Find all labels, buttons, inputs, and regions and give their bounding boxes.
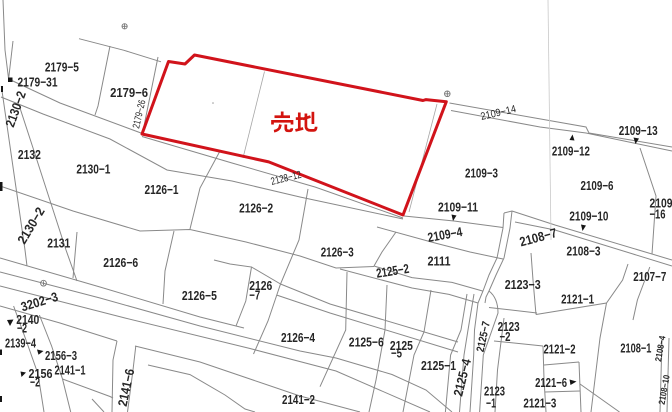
svg-text:2121−3: 2121−3 xyxy=(523,396,556,411)
svg-text:2121−2: 2121−2 xyxy=(544,342,576,357)
svg-text:2179−31: 2179−31 xyxy=(18,74,58,89)
svg-text:2109−6: 2109−6 xyxy=(581,178,614,193)
svg-text:2125−1: 2125−1 xyxy=(421,358,456,373)
svg-text:2126−6: 2126−6 xyxy=(103,255,138,270)
svg-text:2108−1: 2108−1 xyxy=(620,341,651,356)
svg-text:2125−6: 2125−6 xyxy=(349,334,384,349)
svg-text:2139−4: 2139−4 xyxy=(5,336,37,351)
svg-text:2130−1: 2130−1 xyxy=(76,162,110,177)
svg-text:−16: −16 xyxy=(650,207,666,222)
svg-text:2132: 2132 xyxy=(18,147,41,162)
svg-text:2179−5: 2179−5 xyxy=(45,59,79,74)
svg-text:2121−6: 2121−6 xyxy=(535,375,567,390)
svg-text:−2: −2 xyxy=(30,375,40,390)
svg-text:2126−2: 2126−2 xyxy=(239,200,273,215)
svg-text:2108−3: 2108−3 xyxy=(567,243,601,258)
svg-text:2126−3: 2126−3 xyxy=(321,245,354,260)
svg-text:−2: −2 xyxy=(17,321,27,336)
svg-text:2109−3: 2109−3 xyxy=(465,165,498,180)
svg-text:2126−1: 2126−1 xyxy=(145,182,179,197)
svg-text:2109−11: 2109−11 xyxy=(438,200,478,215)
svg-text:2107−7: 2107−7 xyxy=(633,269,666,284)
svg-text:2109−10: 2109−10 xyxy=(569,208,608,223)
svg-text:2126−4: 2126−4 xyxy=(281,330,316,345)
svg-text:2109−12: 2109−12 xyxy=(552,143,590,158)
svg-text:2121−1: 2121−1 xyxy=(561,292,594,307)
svg-text:2141−2: 2141−2 xyxy=(282,392,315,407)
svg-text:2111: 2111 xyxy=(428,254,451,269)
svg-text:2141−1: 2141−1 xyxy=(55,363,86,378)
svg-text:2179−6: 2179−6 xyxy=(110,85,148,100)
svg-text:−5: −5 xyxy=(391,345,402,360)
svg-text:−7: −7 xyxy=(249,288,260,303)
svg-text:2131: 2131 xyxy=(47,235,70,250)
svg-text:2126−5: 2126−5 xyxy=(182,288,217,303)
svg-text:2109−13: 2109−13 xyxy=(619,123,658,138)
svg-text:2156−3: 2156−3 xyxy=(45,348,77,363)
svg-text:−1: −1 xyxy=(486,396,496,411)
svg-text:2123−3: 2123−3 xyxy=(505,277,541,292)
svg-text:−2: −2 xyxy=(500,329,511,344)
